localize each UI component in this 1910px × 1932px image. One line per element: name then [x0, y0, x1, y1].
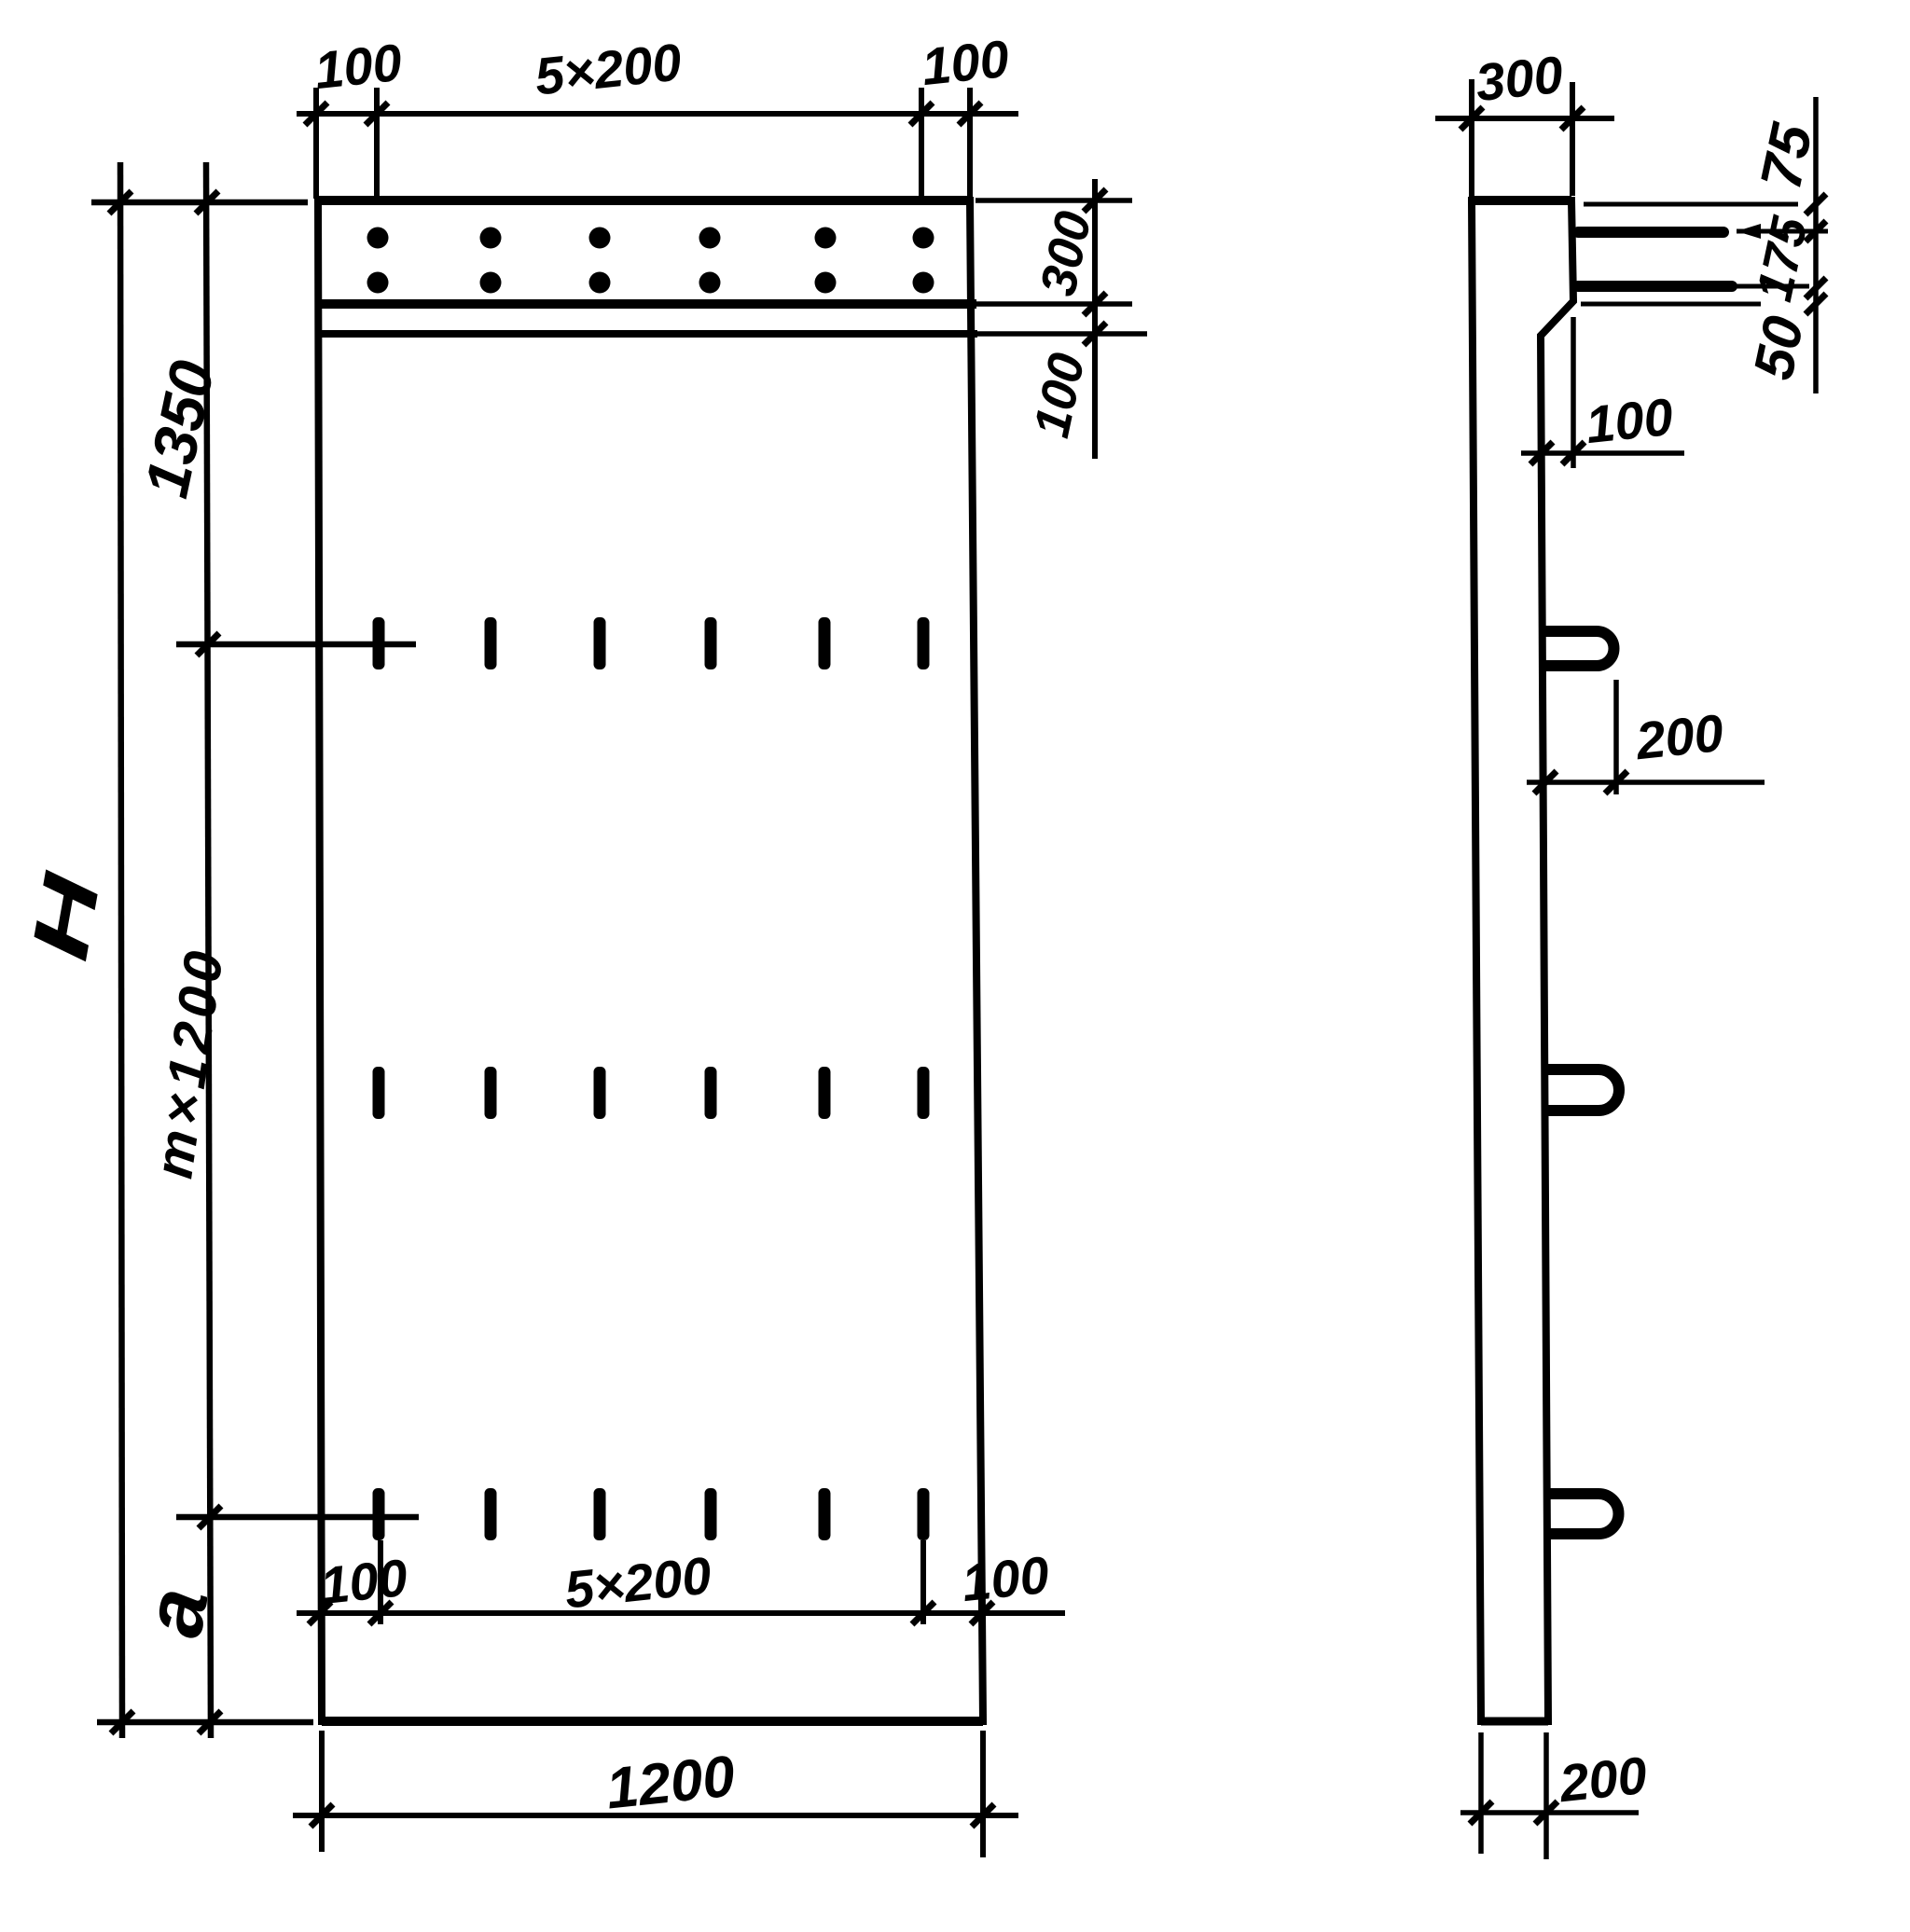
svg-text:200: 200 [1556, 1746, 1650, 1814]
svg-text:300: 300 [1473, 45, 1566, 112]
svg-text:5×200: 5×200 [532, 32, 684, 105]
svg-text:100: 100 [919, 29, 1012, 96]
svg-text:100: 100 [311, 33, 405, 100]
svg-text:H: H [14, 865, 118, 966]
svg-text:50: 50 [1741, 310, 1815, 384]
svg-text:100: 100 [317, 1548, 410, 1615]
svg-text:100: 100 [1023, 349, 1095, 443]
svg-text:100: 100 [959, 1545, 1052, 1612]
svg-text:1350: 1350 [131, 354, 228, 503]
svg-text:5×200: 5×200 [561, 1545, 713, 1619]
svg-text:1200: 1200 [603, 1744, 738, 1821]
svg-text:100: 100 [1583, 387, 1676, 454]
svg-text:200: 200 [1632, 703, 1726, 771]
svg-text:300: 300 [1030, 207, 1101, 301]
svg-text:m×1200: m×1200 [143, 942, 235, 1181]
